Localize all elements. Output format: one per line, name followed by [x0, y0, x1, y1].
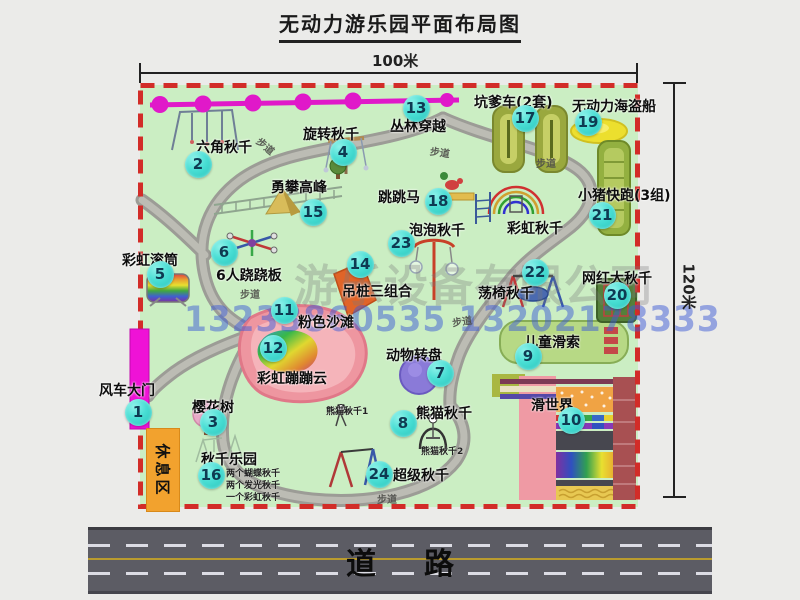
- attraction-label: 跳跳马: [378, 187, 420, 207]
- attraction-number-badge: 11: [271, 297, 298, 324]
- attraction-label: 粉色沙滩: [298, 312, 354, 332]
- attraction-number-badge: 4: [330, 139, 357, 166]
- attraction-label: 彩虹秋千: [507, 218, 563, 238]
- attraction-number-badge: 13: [403, 95, 430, 122]
- footpath-label: 步道: [240, 286, 260, 301]
- attraction-label: 泡泡秋千: [409, 220, 465, 240]
- attraction-number-badge: 24: [366, 461, 393, 488]
- footpath-label: 步道: [536, 155, 556, 170]
- attraction-label: 小猪快跑(3组): [578, 185, 671, 205]
- dimension-width-label: 100米: [372, 50, 418, 71]
- page-title: 无动力游乐园平面布局图: [0, 8, 800, 37]
- attraction-sub-label: 一个彩虹秋千: [226, 490, 280, 503]
- footpath-label: 步道: [377, 491, 397, 506]
- attraction-label: 6人跷跷板: [216, 265, 282, 285]
- attraction-number-badge: 20: [604, 282, 631, 309]
- attraction-number-badge: 10: [558, 407, 585, 434]
- footpath-label: 步道: [451, 312, 473, 330]
- attraction-number-badge: 7: [427, 360, 454, 387]
- attraction-label: 风车大门: [99, 380, 155, 400]
- attraction-label: 熊猫秋千: [416, 403, 472, 423]
- attraction-number-badge: 5: [147, 261, 174, 288]
- park-layout-plan: 无动力游乐园平面布局图: [0, 0, 800, 600]
- attraction-label: 超级秋千: [393, 465, 449, 485]
- attraction-number-badge: 6: [211, 239, 238, 266]
- attraction-number-badge: 12: [260, 335, 287, 362]
- dimension-height-label: 120米: [679, 263, 700, 309]
- attraction-number-badge: 8: [390, 410, 417, 437]
- attraction-number-badge: 2: [185, 151, 212, 178]
- footpath-label: 步道: [254, 133, 279, 157]
- attraction-sub-label: 熊猫秋千1: [326, 404, 368, 417]
- attraction-number-badge: 9: [515, 343, 542, 370]
- attraction-number-badge: 21: [589, 202, 616, 229]
- attraction-number-badge: 15: [300, 199, 327, 226]
- attraction-sub-label: 熊猫秋千2: [421, 444, 463, 457]
- attraction-number-badge: 19: [575, 109, 602, 136]
- attraction-label: 吊桩三组合: [342, 281, 412, 301]
- attraction-number-badge: 14: [347, 251, 374, 278]
- attraction-label: 勇攀高峰: [271, 177, 327, 197]
- attraction-number-badge: 1: [125, 399, 152, 426]
- attraction-label: 坑爹车(2套): [474, 92, 553, 112]
- attraction-number-badge: 16: [198, 462, 225, 489]
- attraction-number-badge: 22: [522, 259, 549, 286]
- attraction-number-badge: 23: [388, 230, 415, 257]
- attraction-number-badge: 18: [425, 188, 452, 215]
- footpath-label: 步道: [429, 143, 451, 161]
- attraction-label: 荡椅秋千: [478, 283, 534, 303]
- attraction-number-badge: 17: [512, 105, 539, 132]
- attraction-number-badge: 3: [200, 409, 227, 436]
- attraction-label: 彩虹蹦蹦云: [257, 368, 327, 388]
